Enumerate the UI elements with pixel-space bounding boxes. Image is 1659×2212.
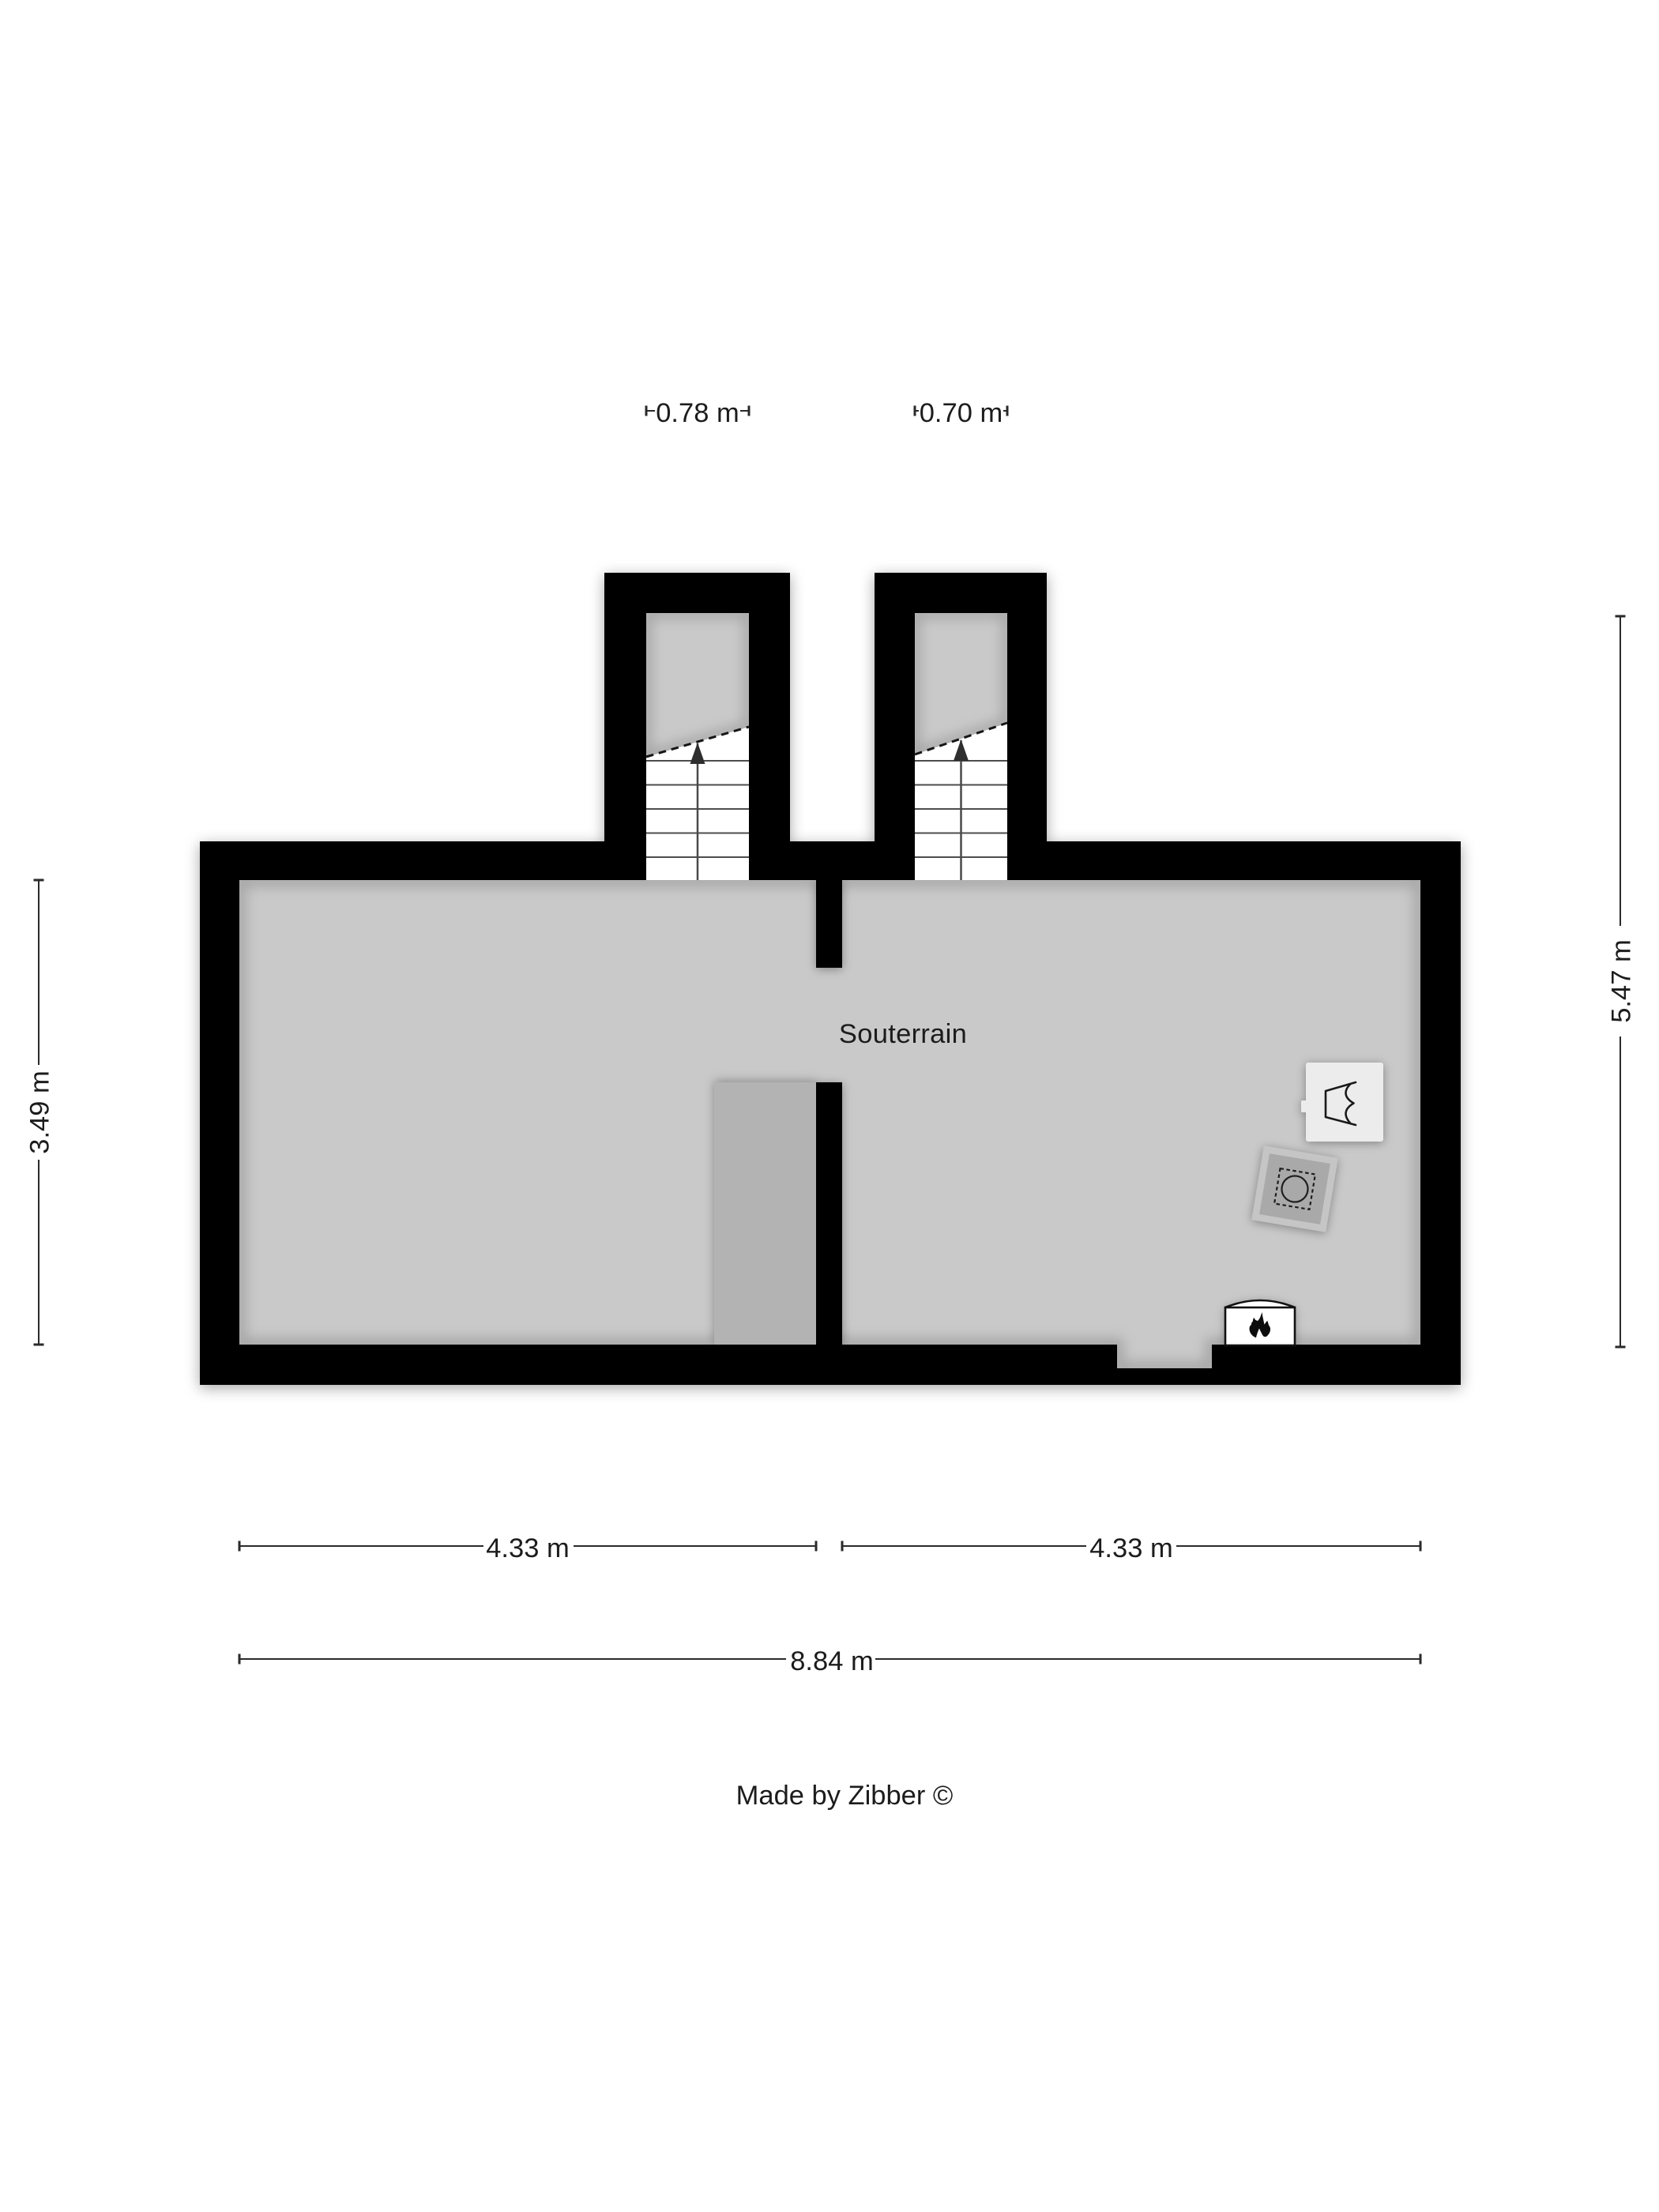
svg-text:0.78 m: 0.78 m — [656, 398, 739, 428]
svg-text:4.33 m: 4.33 m — [1089, 1533, 1172, 1563]
svg-text:0.70 m: 0.70 m — [920, 398, 1003, 428]
svg-text:Made by Zibber ©: Made by Zibber © — [736, 1781, 954, 1811]
svg-text:8.84 m: 8.84 m — [790, 1646, 873, 1676]
svg-text:4.33 m: 4.33 m — [486, 1533, 569, 1563]
svg-text:3.49 m: 3.49 m — [25, 1070, 55, 1153]
svg-text:5.47 m: 5.47 m — [1607, 939, 1637, 1022]
svg-text:Souterrain: Souterrain — [839, 1019, 967, 1049]
